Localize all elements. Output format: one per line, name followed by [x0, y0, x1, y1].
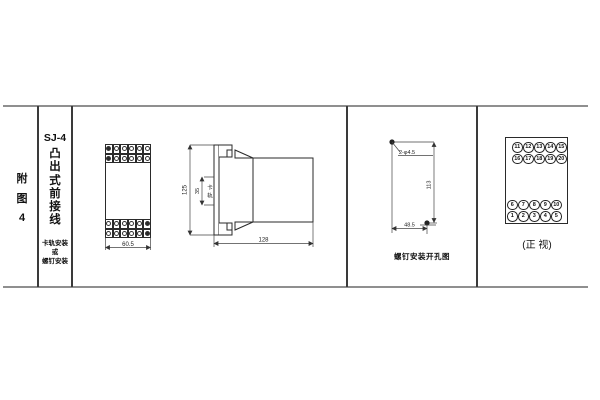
terminal-circle-15: 15 — [556, 142, 567, 153]
screw-icon — [145, 146, 150, 151]
terminal-circle-20: 20 — [556, 154, 567, 165]
side-view-case-body — [253, 158, 313, 222]
screw-icon — [129, 231, 134, 236]
terminal-screw-cell — [136, 229, 144, 239]
terminal-screw-cell — [113, 219, 121, 229]
figure-index-char: 附 — [10, 170, 34, 190]
screw-icon — [145, 231, 150, 236]
terminal-circle-4: 4 — [540, 211, 551, 222]
terminal-screw-cell — [105, 229, 113, 239]
dim-rail-width: 35 — [195, 188, 201, 194]
terminal-circle-6: 6 — [507, 200, 518, 211]
screw-icon — [137, 146, 142, 151]
screw-icon — [137, 221, 142, 226]
screw-icon — [114, 221, 119, 226]
style-char: 式 — [38, 175, 72, 188]
terminal-circle-17: 17 — [523, 154, 534, 165]
terminal-screw-cell — [128, 219, 136, 229]
screw-icon — [106, 231, 111, 236]
style-char: 凸 — [38, 148, 72, 161]
dim-width-front: 60.5 — [122, 242, 134, 248]
side-view-front-plate — [214, 145, 219, 235]
screw-icon — [129, 146, 134, 151]
terminal-circle-10: 10 — [551, 200, 562, 211]
side-view-top-clip — [219, 145, 232, 157]
screw-icon — [129, 221, 134, 226]
terminal-screw-cell — [136, 144, 144, 154]
style-char: 前 — [38, 188, 72, 201]
terminal-circle-9: 9 — [540, 200, 551, 211]
terminal-circle-3: 3 — [529, 211, 540, 222]
terminal-screw-cell — [143, 154, 151, 164]
terminal-screw-cell — [113, 154, 121, 164]
terminal-circle-13: 13 — [534, 142, 545, 153]
dim-height-side: 125 — [183, 184, 189, 195]
figure-index-char: 图 — [10, 190, 34, 210]
model-label: SJ-4 — [38, 132, 72, 144]
terminal-circle-11: 11 — [512, 142, 523, 153]
terminal-row: 1617181920 — [512, 154, 567, 165]
screw-icon — [122, 156, 127, 161]
screw-icon — [137, 156, 142, 161]
screw-icon — [106, 156, 111, 161]
terminal-screw-cell — [120, 154, 128, 164]
style-char: 接 — [38, 201, 72, 214]
drill-hole-diagram: 2-φ4.5 113 48.5 — [378, 130, 450, 242]
front-view-width-dimension: 60.5 — [100, 238, 158, 254]
terminal-layout-box: 1112131415 1617181920 678910 12345 — [505, 137, 568, 224]
figure-index-char: 4 — [10, 209, 34, 229]
terminal-screw-cell — [128, 229, 136, 239]
side-view-bottom-wedge — [235, 222, 253, 230]
screw-icon — [145, 156, 150, 161]
terminal-circle-8: 8 — [529, 200, 540, 211]
terminal-screw-cell — [136, 154, 144, 164]
screw-icon — [129, 156, 134, 161]
screw-icon — [145, 221, 150, 226]
mount-options-note: 卡轨安装 或 螺钉安装 — [38, 239, 72, 266]
side-view-top-wedge — [235, 150, 253, 158]
dim-depth-side: 128 — [258, 238, 269, 244]
table-divider-3 — [346, 106, 348, 287]
front-view-top-terminals — [105, 144, 151, 163]
terminal-screw-cell — [105, 144, 113, 154]
terminal-screw-cell — [120, 144, 128, 154]
terminal-circle-12: 12 — [523, 142, 534, 153]
screw-icon — [137, 231, 142, 236]
terminal-row: 1112131415 — [512, 142, 567, 153]
screw-icon — [122, 221, 127, 226]
style-char: 出 — [38, 161, 72, 174]
rail-label-char: 卡 — [207, 184, 213, 192]
terminal-screw-cell — [105, 219, 113, 229]
terminal-circle-5: 5 — [551, 211, 562, 222]
terminal-view-caption: (正 视) — [503, 236, 571, 251]
style-char: 线 — [38, 214, 72, 227]
terminal-screw-cell — [120, 219, 128, 229]
rail-label-char: 轨 — [207, 192, 213, 200]
screw-icon — [114, 146, 119, 151]
terminal-row: 678910 — [507, 200, 562, 211]
figure-sheet: 附 图 4 SJ-4 凸 出 式 前 接 线 卡轨安装 或 螺钉安装 60.5 … — [0, 0, 600, 400]
terminal-screw-cell — [143, 229, 151, 239]
side-view-drawing: 125 35 卡 轨 128 — [183, 130, 318, 252]
terminal-screw-cell — [113, 229, 121, 239]
terminal-screw-cell — [120, 229, 128, 239]
table-border-bottom — [3, 286, 588, 288]
screw-icon — [114, 156, 119, 161]
dim-hole-spacing-v: 113 — [427, 181, 433, 190]
terminal-row: 12345 — [507, 211, 562, 222]
terminal-screw-cell — [113, 144, 121, 154]
terminal-circle-18: 18 — [534, 154, 545, 165]
terminal-circle-16: 16 — [512, 154, 523, 165]
hole-diameter-label: 2-φ4.5 — [399, 150, 415, 156]
mount-option: 卡轨安装 — [38, 239, 72, 248]
drill-diagram-caption: 螺钉安装开孔图 — [383, 251, 461, 262]
screw-icon — [114, 231, 119, 236]
table-divider-4 — [476, 106, 478, 287]
mounting-style-label: 凸 出 式 前 接 线 — [38, 148, 72, 228]
figure-index-label: 附 图 4 — [10, 170, 34, 229]
terminal-circle-2: 2 — [518, 211, 529, 222]
terminal-screw-cell — [128, 144, 136, 154]
terminal-screw-cell — [136, 219, 144, 229]
terminal-circle-14: 14 — [545, 142, 556, 153]
terminal-screw-cell — [105, 154, 113, 164]
terminal-screw-cell — [143, 144, 151, 154]
terminal-circle-1: 1 — [507, 211, 518, 222]
terminal-screw-cell — [128, 154, 136, 164]
table-border-top — [3, 105, 588, 107]
screw-icon — [106, 221, 111, 226]
screw-icon — [122, 146, 127, 151]
front-view-bottom-terminals — [105, 219, 151, 238]
mount-option: 或 — [38, 248, 72, 257]
terminal-circle-7: 7 — [518, 200, 529, 211]
side-view-bottom-clip — [219, 223, 232, 235]
screw-icon — [106, 146, 111, 151]
dim-hole-spacing-h: 48.5 — [404, 223, 415, 229]
terminal-screw-cell — [143, 219, 151, 229]
mount-option: 螺钉安装 — [38, 257, 72, 266]
terminal-circle-19: 19 — [545, 154, 556, 165]
screw-icon — [122, 231, 127, 236]
